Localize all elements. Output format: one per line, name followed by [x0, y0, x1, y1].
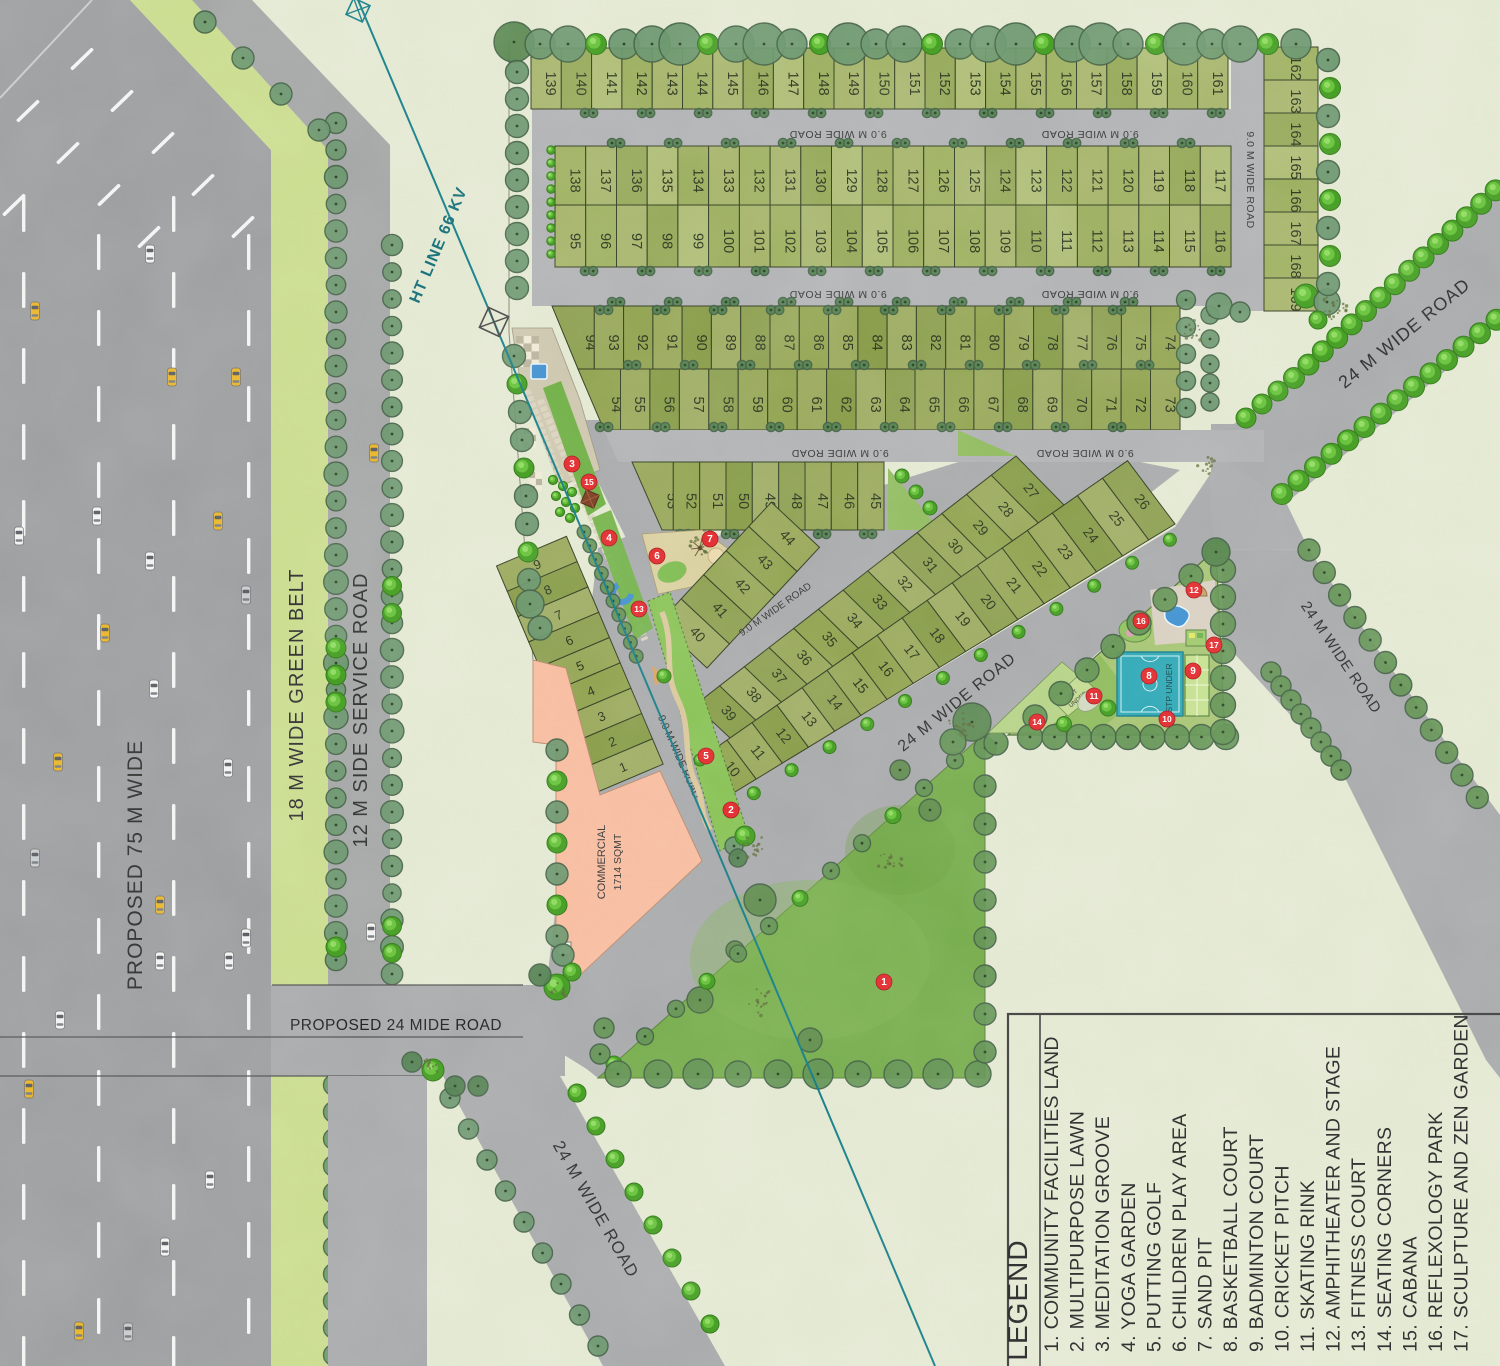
svg-text:LEGEND: LEGEND	[1002, 1239, 1033, 1360]
svg-text:1. COMMUNITY FACILITIES LAND: 1. COMMUNITY FACILITIES LAND	[1041, 1036, 1063, 1352]
svg-text:11. SKATING RINK: 11. SKATING RINK	[1297, 1180, 1319, 1352]
svg-text:15. CABANA: 15. CABANA	[1399, 1236, 1421, 1352]
svg-text:9. BADMINTON COURT: 9. BADMINTON COURT	[1246, 1134, 1268, 1352]
svg-text:14. SEATING CORNERS: 14. SEATING CORNERS	[1374, 1127, 1396, 1352]
svg-text:12. AMPHITHEATER AND STAGE: 12. AMPHITHEATER AND STAGE	[1323, 1046, 1345, 1352]
svg-text:6. CHILDREN PLAY AREA: 6. CHILDREN PLAY AREA	[1169, 1113, 1191, 1352]
svg-text:8. BASKETBALL COURT: 8. BASKETBALL COURT	[1220, 1126, 1242, 1352]
svg-text:17. SCULPTURE AND ZEN GARDEN: 17. SCULPTURE AND ZEN GARDEN	[1451, 1014, 1473, 1352]
svg-text:10. CRICKET PITCH: 10. CRICKET PITCH	[1271, 1165, 1293, 1352]
svg-text:2. MULTIPURPOSE LAWN: 2. MULTIPURPOSE LAWN	[1067, 1111, 1089, 1352]
svg-text:5. PUTTING GOLF: 5. PUTTING GOLF	[1143, 1182, 1165, 1352]
svg-text:7. SAND PIT: 7. SAND PIT	[1195, 1237, 1217, 1352]
svg-text:3. MEDITATION GROOVE: 3. MEDITATION GROOVE	[1092, 1116, 1114, 1352]
svg-text:13. FITNESS COURT: 13. FITNESS COURT	[1348, 1158, 1370, 1352]
svg-text:16. REFLEXOLOGY PARK: 16. REFLEXOLOGY PARK	[1425, 1112, 1447, 1352]
svg-text:4. YOGA GARDEN: 4. YOGA GARDEN	[1118, 1182, 1140, 1352]
